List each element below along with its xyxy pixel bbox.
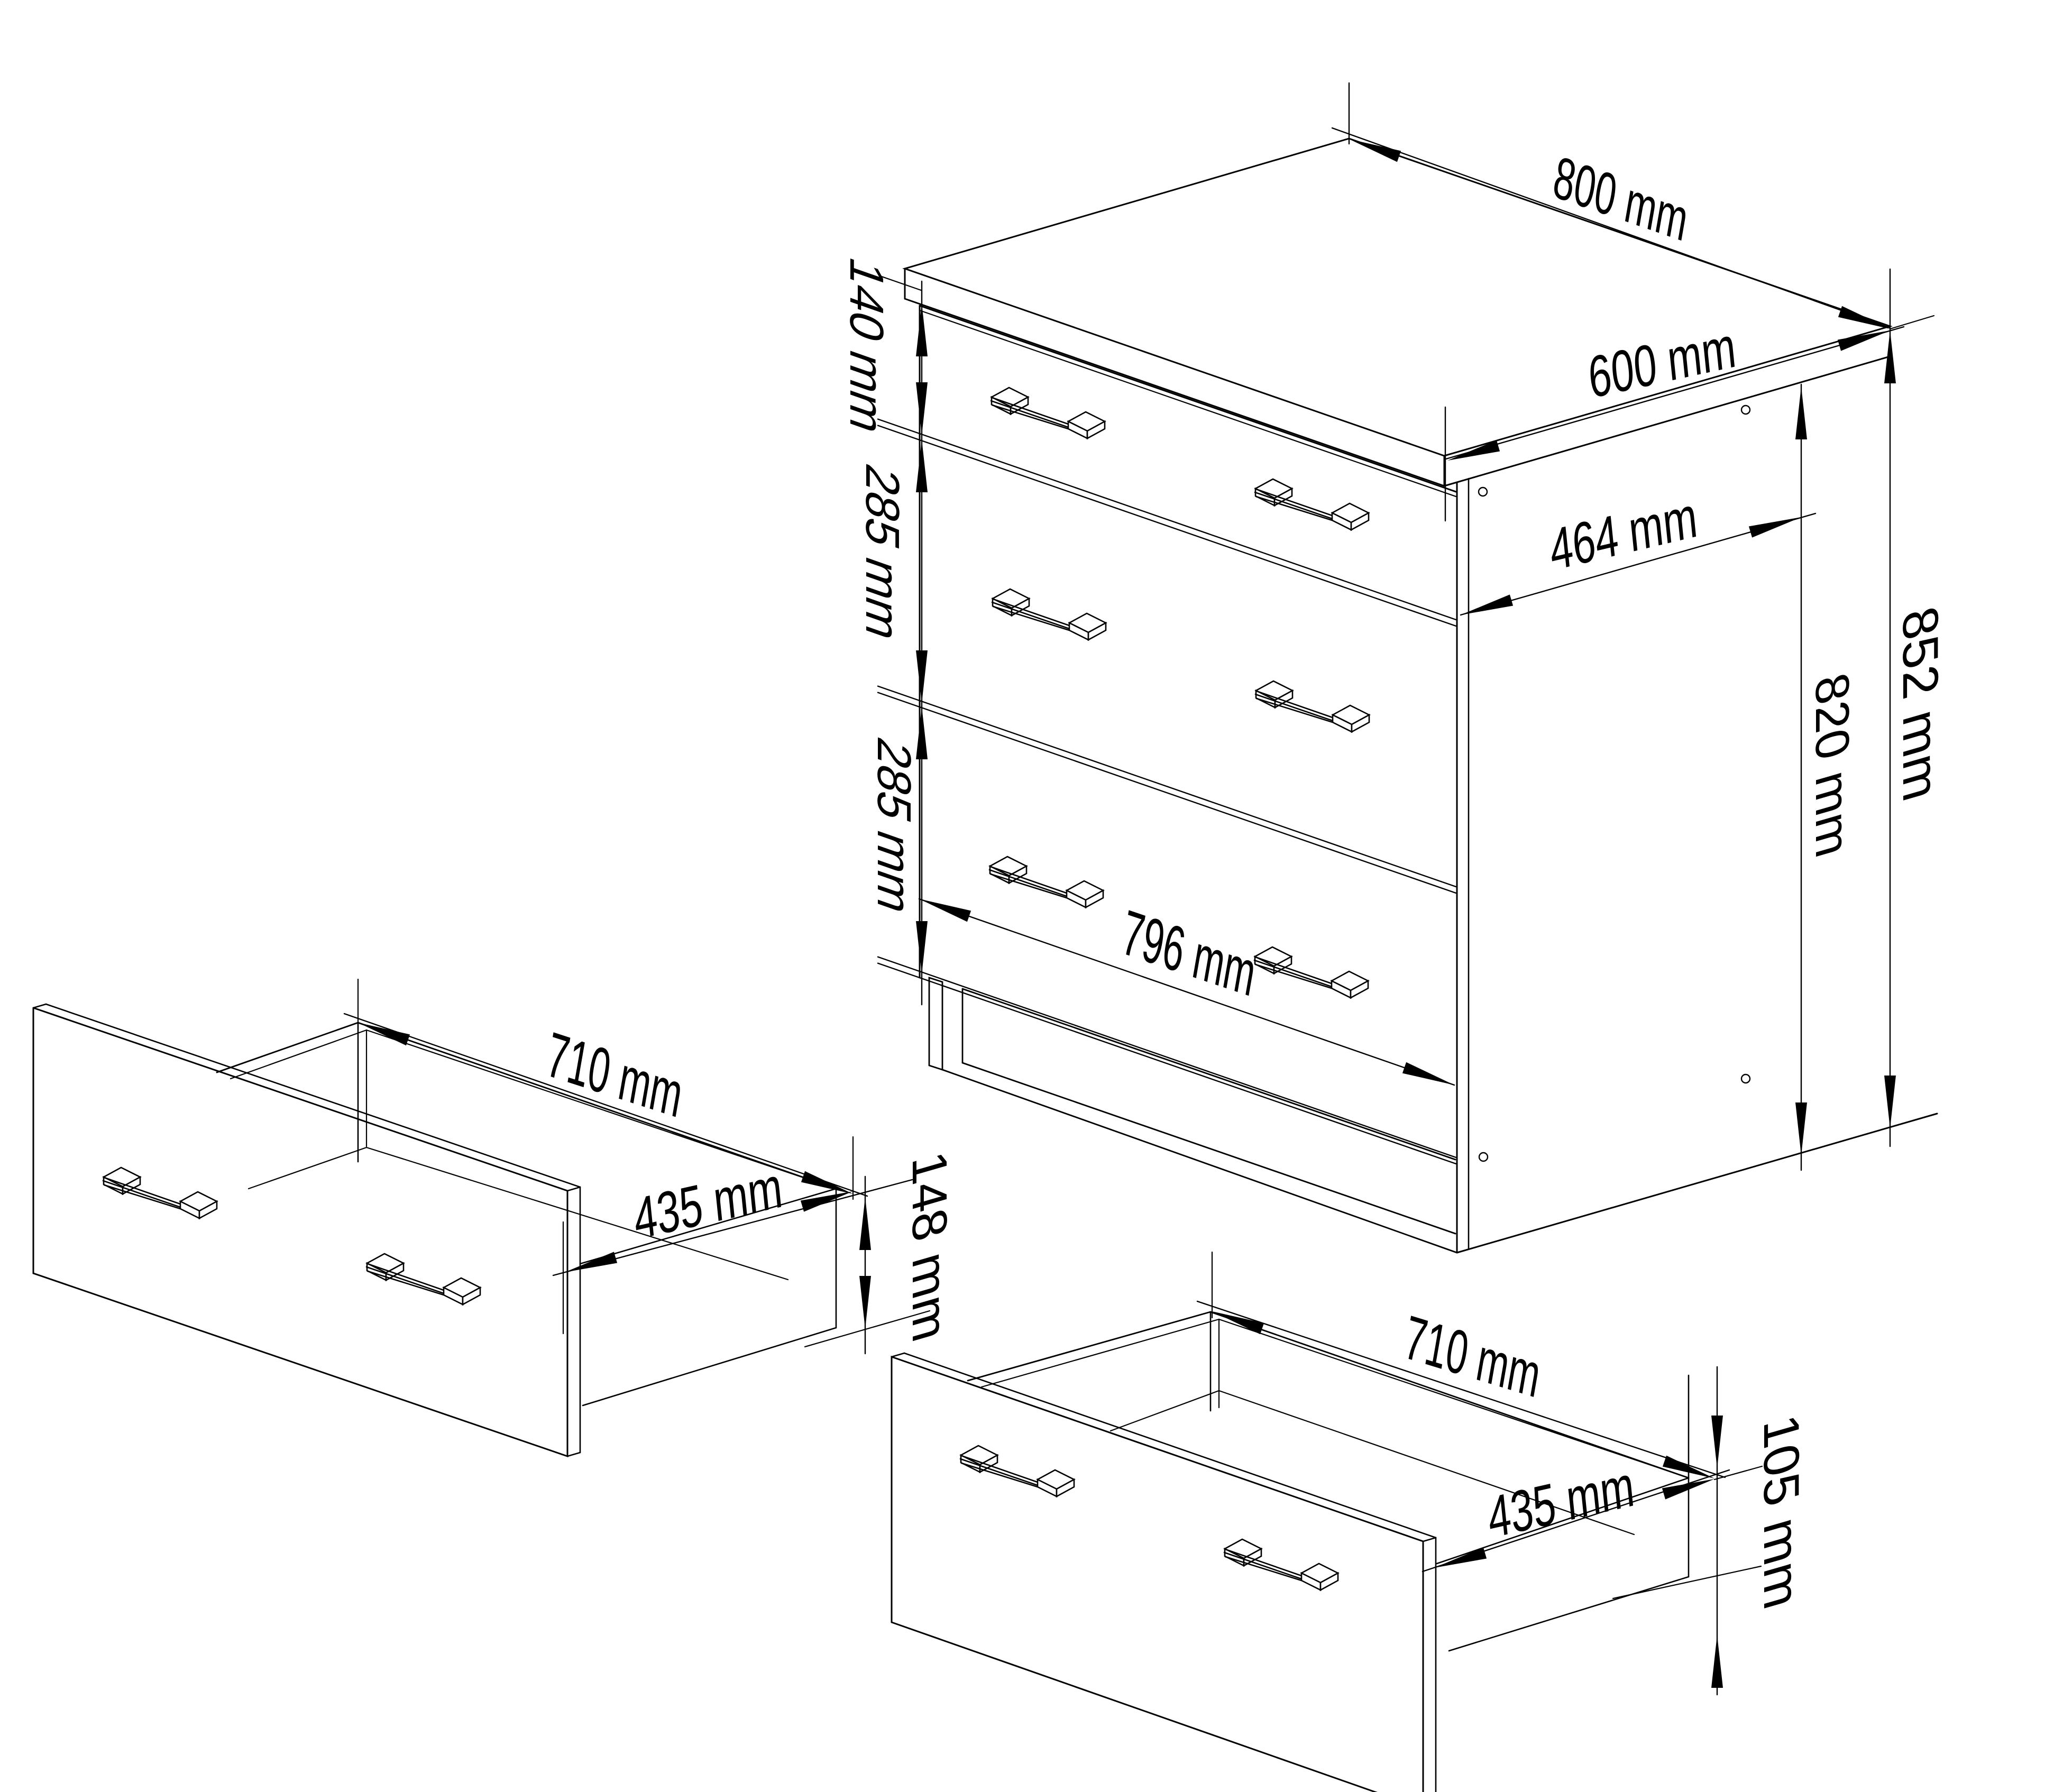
svg-text:285 mm: 285 mm bbox=[868, 731, 921, 922]
svg-text:105 mm: 105 mm bbox=[1753, 1408, 1809, 1615]
svg-text:285 mm: 285 mm bbox=[856, 458, 910, 648]
svg-text:140 mm: 140 mm bbox=[840, 251, 894, 442]
svg-text:820 mm: 820 mm bbox=[1806, 667, 1859, 862]
svg-text:852 mm: 852 mm bbox=[1892, 600, 1948, 807]
svg-text:148 mm: 148 mm bbox=[902, 1145, 957, 1348]
